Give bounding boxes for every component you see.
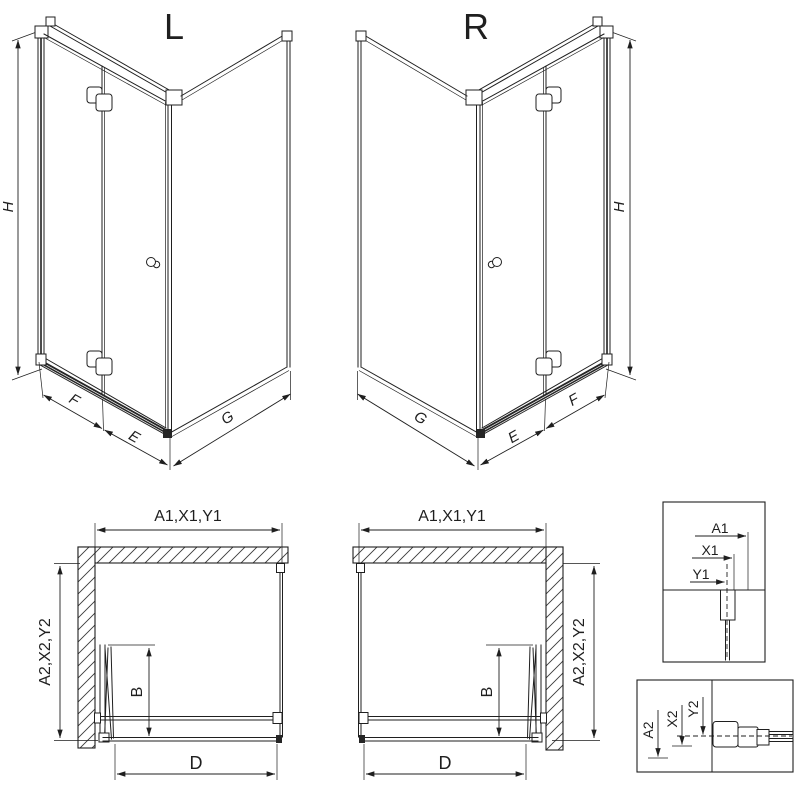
dim-label-height-right: H [611,201,628,212]
detail-dim-x2: X2 [664,710,680,727]
dim-label-width-left-plan: A1,X1,Y1 [154,508,222,525]
variant-right-title: R [463,6,489,47]
dim-label-door-right-plan: B [479,687,496,698]
iso-view-left: L H F E G [0,6,292,470]
dim-label-width-right-plan: A1,X1,Y1 [418,508,486,525]
dim-label-depth-right-plan: A2,X2,Y2 [571,618,588,686]
dim-label-side-left: G [218,408,237,429]
dim-label-opening-left-plan: D [190,753,203,773]
dim-label-entry-left: E [126,427,144,447]
wall-top-left-plan [78,547,288,563]
diagram-canvas: L H F E G R H F E G A1,X1,Y1 A2,X2,Y2 [0,0,800,800]
dim-label-height-left: H [0,201,17,212]
dim-label-door-left-plan: B [129,687,146,698]
dim-label-entry-right: E [505,427,523,447]
detail-box-width: A1 X1 Y1 [663,502,765,662]
plan-view-right: A1,X1,Y1 A2,X2,Y2 B D [353,508,600,780]
iso-view-right: R H F E G [356,6,636,470]
wall-top-right-plan [353,547,563,563]
detail-dim-y2: Y2 [685,700,701,717]
detail-dim-x1: X1 [701,542,718,558]
dim-label-fixed-right: F [566,390,583,410]
wall-side-right-plan [546,547,563,750]
detail-dim-a2: A2 [640,721,656,738]
plan-view-left: A1,X1,Y1 A2,X2,Y2 B D [37,508,288,780]
dim-label-opening-right-plan: D [439,753,452,773]
variant-left-title: L [164,6,184,47]
dim-label-depth-left-plan: A2,X2,Y2 [37,618,54,686]
detail-box-depth: A2 X2 Y2 [637,680,793,772]
detail-dim-y1: Y1 [692,566,709,582]
dim-label-side-right: G [411,408,430,429]
dim-label-fixed-left: F [66,390,83,410]
wall-side-left-plan [78,547,95,748]
detail-dim-a1: A1 [711,520,728,536]
shower-enclosure-diagram: L H F E G R H F E G A1,X1,Y1 A2,X2,Y2 [0,0,800,800]
